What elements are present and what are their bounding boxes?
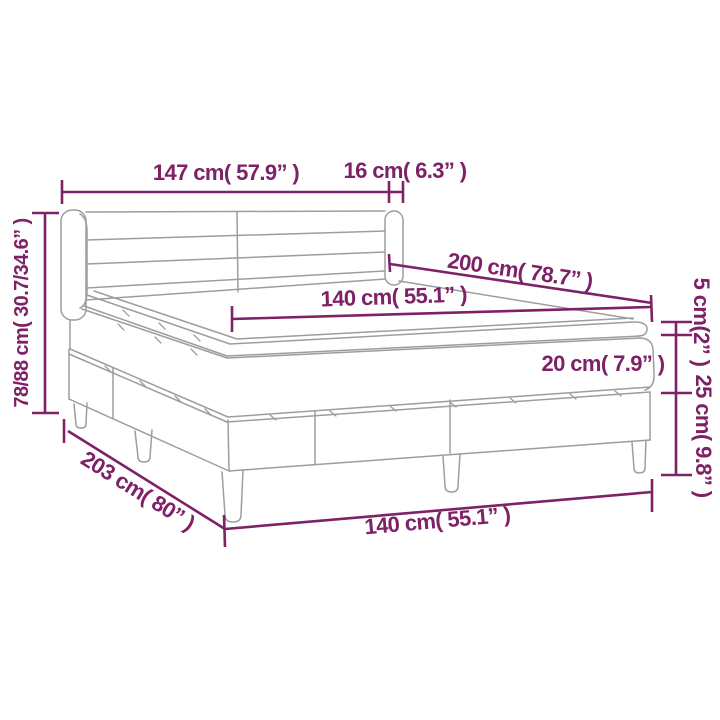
topper-top-surface-front-edge bbox=[237, 318, 633, 339]
base-front-left-corner-edge bbox=[228, 420, 229, 471]
label-headboard-side-depth: 16 cm( 6.3” ) bbox=[343, 158, 466, 183]
leg-front-middle bbox=[443, 454, 460, 492]
headboard-top-edge bbox=[86, 211, 385, 212]
leg-front-corner bbox=[222, 470, 243, 522]
leg-front-right bbox=[632, 440, 646, 473]
mattress-left-top-edge bbox=[82, 309, 227, 358]
headboard-center-seam bbox=[237, 212, 238, 292]
headboard-slat-line-2 bbox=[86, 252, 385, 264]
headboard-left-bolster bbox=[61, 210, 86, 320]
bed-dimension-diagram: 147 cm( 57.9” ) 16 cm( 6.3” ) 78/88 cm( … bbox=[0, 0, 720, 720]
dimension-overall-height bbox=[32, 213, 59, 413]
topper-left-bottom-edge bbox=[84, 306, 227, 356]
topper-top-surface-left-edge bbox=[94, 291, 237, 339]
base-front-bottom-edge bbox=[229, 440, 650, 471]
headboard-slat-line-1 bbox=[86, 231, 385, 240]
dimension-headboard-side-depth bbox=[389, 181, 403, 203]
topper-left-piping bbox=[87, 295, 230, 344]
label-mattress-height: 20 cm( 7.9” ) bbox=[541, 351, 664, 376]
label-base-height: 25 cm( 9.8” ) bbox=[691, 374, 716, 497]
label-headboard-width: 147 cm( 57.9” ) bbox=[153, 160, 300, 185]
label-base-width: 140 cm( 55.1” ) bbox=[363, 502, 511, 540]
label-bed-length: 200 cm( 78.7” ) bbox=[446, 248, 595, 294]
diagram-canvas: 147 cm( 57.9” ) 16 cm( 6.3” ) 78/88 cm( … bbox=[0, 0, 720, 720]
label-mattress-width: 140 cm( 55.1” ) bbox=[320, 281, 467, 311]
dimension-right-height-stack bbox=[661, 322, 692, 475]
label-overall-height: 78/88 cm( 30.7/34.6” ) bbox=[11, 218, 33, 407]
headboard-right-bolster bbox=[385, 211, 403, 285]
label-topper-height: 5 cm(2” ) bbox=[689, 278, 714, 367]
